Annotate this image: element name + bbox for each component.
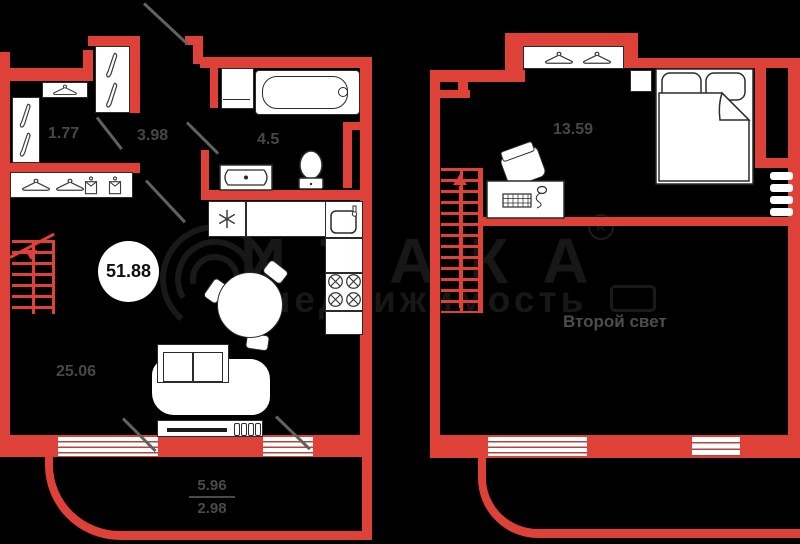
washing-machine: [221, 68, 254, 109]
hanger-icon: [105, 81, 119, 109]
wall: [755, 68, 766, 160]
hanger-icon: [19, 131, 32, 158]
hanger-icon: [542, 51, 576, 65]
counter-divider: [245, 202, 247, 236]
room-area-label: 13.59: [553, 121, 593, 139]
wardrobe: [10, 172, 133, 198]
window: [488, 437, 587, 456]
stairs-arrow-shaft: [459, 186, 462, 308]
shelf-slat: [770, 184, 793, 192]
tv-stand: [157, 420, 263, 437]
wall: [200, 57, 372, 68]
hanger-icon: [19, 178, 53, 192]
balcony-area-label: 5.96 2.98: [189, 477, 235, 517]
toilet-icon: [297, 149, 325, 191]
bathtub: [255, 70, 360, 115]
watermark-word-text: недвижимость: [268, 279, 587, 321]
shirt-icon: [83, 176, 99, 195]
balcony-area-half: 2.98: [197, 500, 226, 517]
shirt-icon: [107, 176, 123, 195]
wall: [430, 435, 800, 458]
sink-icon: [219, 164, 273, 191]
room-area-label: 4.5: [257, 131, 279, 149]
wall: [788, 58, 800, 458]
closet: [523, 46, 624, 69]
desk: [486, 178, 566, 220]
balcony-area-full: 5.96: [197, 477, 226, 494]
radiator-fin: [234, 423, 240, 436]
closet: [95, 46, 130, 113]
desk-chair-back: [500, 140, 536, 162]
entry-door-swing: [143, 2, 189, 45]
wall: [0, 52, 10, 457]
sofa: [157, 344, 229, 383]
window: [692, 437, 740, 456]
wall: [0, 68, 93, 81]
shelf-slat: [770, 196, 793, 204]
room-area-label: 1.77: [48, 125, 79, 143]
floorplan-image: ИТАКА R недвижимость 1993: [0, 0, 800, 544]
tv: [167, 428, 227, 432]
hanger-icon: [580, 51, 614, 65]
stairs-arrow-icon: [453, 174, 467, 185]
kitchen-sink-icon: [329, 205, 361, 235]
wall: [755, 158, 800, 168]
dining-table: [217, 272, 283, 338]
room-area-label: 25.06: [56, 363, 96, 381]
sofa-cushion: [163, 352, 193, 382]
hanger-icon: [105, 51, 119, 79]
radiator-fin: [248, 423, 254, 436]
wall: [210, 68, 218, 108]
stairs-floor2: [441, 168, 483, 313]
radiator-fin: [255, 423, 261, 436]
stove-icon: [327, 273, 363, 309]
wall: [505, 48, 523, 82]
watermark-box-icon: [610, 285, 656, 312]
fraction-bar: [189, 496, 235, 498]
counter-divider: [326, 310, 362, 312]
fridge-snowflake-icon: [216, 208, 238, 230]
bed: [655, 66, 755, 186]
balcony-outline: [478, 458, 800, 538]
hanger-icon: [53, 178, 87, 192]
wall: [0, 435, 372, 457]
nightstand: [630, 70, 652, 92]
wall: [343, 122, 352, 188]
total-area-badge: 51.88: [98, 241, 159, 302]
radiator-fin: [241, 423, 247, 436]
wall: [130, 36, 140, 113]
room-area-label: 3.98: [137, 127, 168, 145]
closet: [42, 82, 88, 98]
bathtub-basin: [262, 76, 348, 109]
shelf-slat: [770, 208, 793, 216]
sofa-cushion: [193, 352, 223, 382]
wall: [440, 90, 470, 98]
stairs-arrow-icon: [25, 250, 37, 260]
wall: [430, 70, 440, 458]
shelf-slat: [770, 172, 793, 180]
hanger-icon: [19, 102, 32, 129]
door-swing: [96, 117, 123, 150]
closet: [12, 97, 40, 163]
second-light-label: Второй свет: [563, 312, 667, 332]
counter-divider: [326, 237, 362, 239]
wall: [203, 190, 372, 200]
wall: [83, 50, 93, 81]
hanger-icon: [50, 84, 80, 96]
bathtub-drain: [338, 87, 348, 97]
washer-panel: [223, 99, 250, 107]
